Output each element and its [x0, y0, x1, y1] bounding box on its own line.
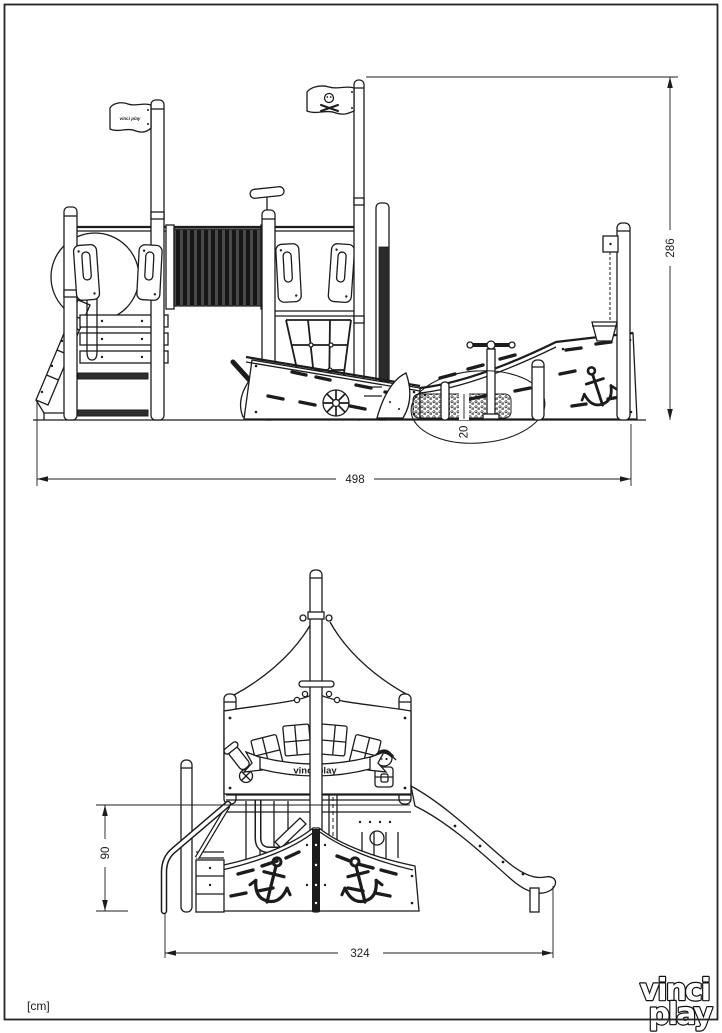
- front-stairs: [164, 760, 228, 912]
- vinciplay-flag: vinci play: [110, 103, 151, 132]
- units-label: [cm]: [27, 999, 50, 1013]
- left-tower: vinci play: [51, 100, 168, 420]
- porthole: [370, 831, 384, 845]
- front-elevation-view: vinci play: [96, 570, 556, 960]
- flag-label: vinci play: [120, 116, 141, 121]
- dim-front-width: 324: [350, 948, 370, 960]
- front-slide: [411, 786, 556, 912]
- guard-panel: [137, 244, 163, 300]
- dim-platform-height: 90: [100, 847, 112, 860]
- guard-panel: [276, 243, 302, 302]
- tower-post: [64, 207, 77, 420]
- logo-line2: play: [648, 997, 713, 1032]
- technical-drawing: vinci play: [0, 0, 722, 1033]
- dim-total-width: 498: [345, 474, 364, 486]
- rigging-rope: [330, 622, 408, 695]
- telescope: [250, 186, 285, 199]
- pirate-flag: [307, 86, 354, 114]
- sand-bucket: [592, 322, 617, 341]
- dim-total-height: 286: [665, 238, 677, 257]
- guard-panel: [73, 244, 100, 300]
- main-mast: [354, 80, 364, 420]
- stem-seam: [312, 829, 320, 911]
- skull-icon: [325, 94, 334, 103]
- dim-sand-depth: 20: [459, 426, 471, 439]
- side-elevation-view: vinci play: [33, 77, 678, 486]
- vinciplay-logo: vinci play: [640, 973, 714, 1032]
- guard-panel: [328, 243, 355, 302]
- crawl-tunnel: [166, 225, 269, 309]
- ship-wheel: [323, 390, 349, 416]
- drawing-sheet: vinci play: [0, 0, 722, 1033]
